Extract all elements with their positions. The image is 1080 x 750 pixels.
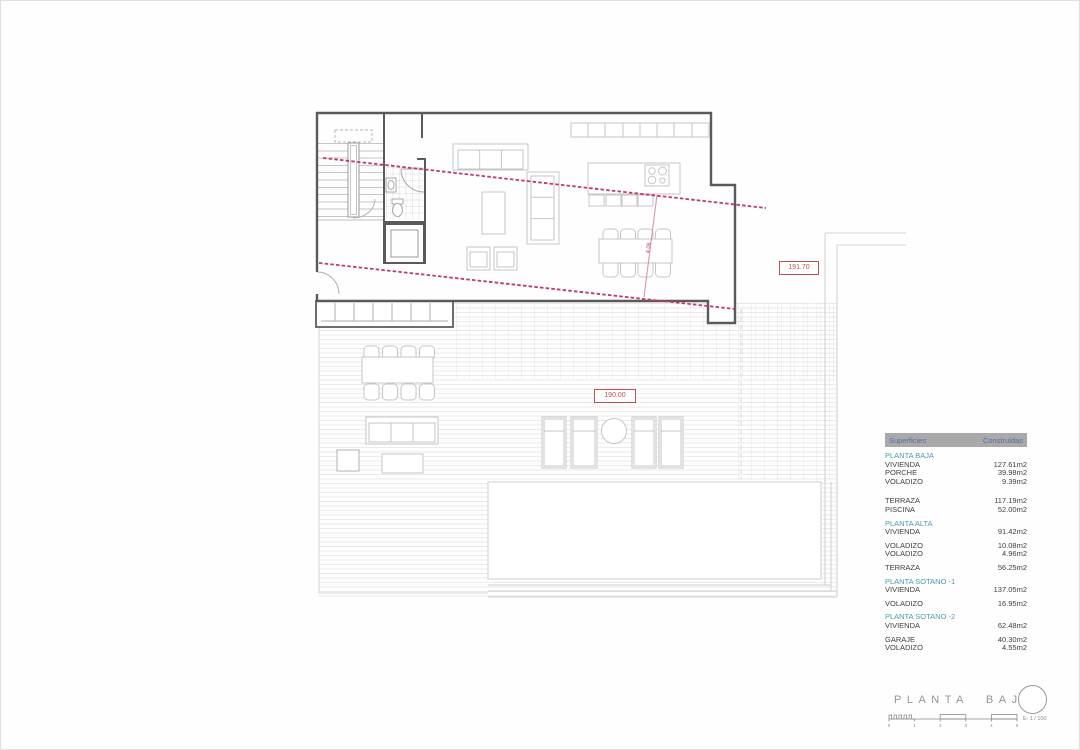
scale-ratio-label: E: 1 / 100 [1023, 716, 1047, 722]
table-row: VOLADIZO16.95m2 [885, 600, 1027, 609]
entry-door [317, 272, 339, 294]
elevation-marker-upper: 191.70 [779, 261, 819, 275]
table-row: VIVIENDA137.05m2 [885, 586, 1027, 595]
svg-text:0: 0 [888, 723, 891, 728]
dining-set [599, 229, 672, 277]
svg-text:1: 1 [913, 723, 916, 728]
svg-text:2: 2 [939, 723, 942, 728]
surfaces-table: Superficies Construidas PLANTA BAJA VIVI… [885, 433, 1027, 653]
bathroom-fixtures [386, 169, 424, 217]
sun-loungers [542, 417, 683, 468]
surfaces-table-header: Superficies Construidas [885, 433, 1027, 447]
title-circle [1018, 685, 1047, 714]
svg-text:5: 5 [1016, 723, 1019, 728]
kitchen [571, 123, 709, 206]
column-header-construidas: Construidas [983, 436, 1023, 445]
terrace-sofa [337, 417, 438, 473]
floor-mask [709, 301, 734, 322]
plan-title: PLANTA BAJA [894, 694, 1035, 706]
column-header-superficies: Superficies [889, 436, 926, 445]
table-row: VOLADIZO4.96m2 [885, 550, 1027, 559]
svg-text:3: 3 [965, 723, 968, 728]
pergola-planter [316, 301, 453, 327]
table-row: VIVIENDA62.48m2 [885, 622, 1027, 631]
table-row: VOLADIZO4.55m2 [885, 644, 1027, 653]
scale-numbers: 0 1 2 3 4 5 [888, 723, 1019, 728]
svg-text:4: 4 [990, 723, 993, 728]
table-row: PISCINA52.00m2 [885, 506, 1027, 515]
table-row: VIVIENDA91.42m2 [885, 528, 1027, 537]
stairs [317, 130, 384, 220]
drawing-sheet: 4.06 191.70 190.00 Superficies Construid… [0, 0, 1080, 750]
table-row: VOLADIZO9.39m2 [885, 478, 1027, 487]
table-row: TERRAZA56.25m2 [885, 564, 1027, 573]
terrace-dining-set [362, 346, 435, 400]
living-room-furniture [453, 144, 559, 270]
graphic-scale-bar: 0 1 2 3 4 5 [887, 709, 1021, 729]
elevation-marker-terrace: 190.00 [594, 389, 636, 403]
